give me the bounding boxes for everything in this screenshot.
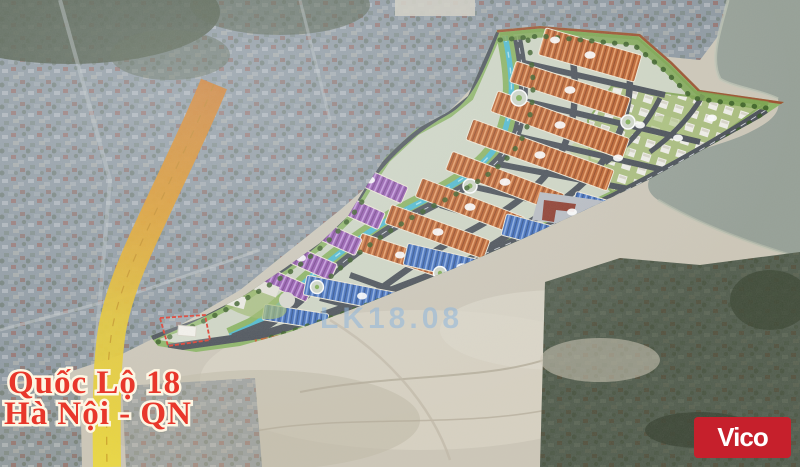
aerial-masterplan-image: LK18.08 Quốc Lộ 18 Hà Nội - QN Vico: [0, 0, 800, 467]
plot-code-label: LK18.08: [320, 302, 463, 335]
vico-logo-text: Vico: [717, 422, 767, 453]
highway-label-line2: Hà Nội - QN: [4, 396, 192, 432]
scene: LK18.08 Quốc Lộ 18 Hà Nội - QN: [0, 0, 800, 467]
vico-logo: Vico: [694, 417, 791, 458]
